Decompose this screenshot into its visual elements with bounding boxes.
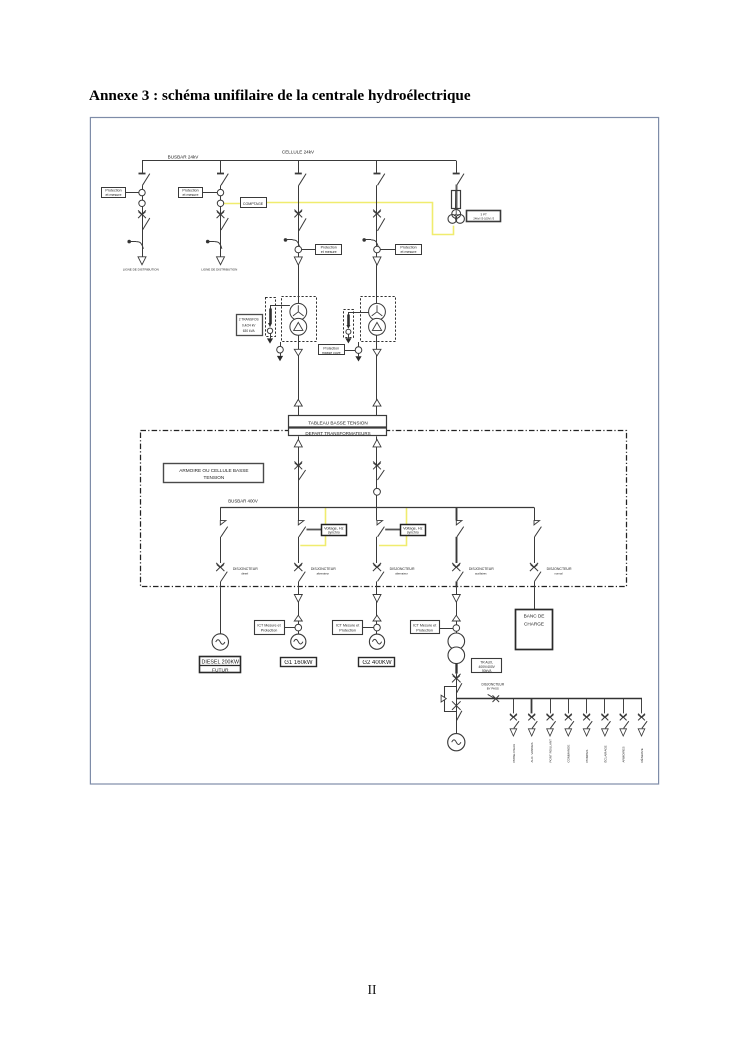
svg-text:alternateur: alternateur — [317, 571, 330, 575]
svg-text:masse cuve: masse cuve — [322, 351, 341, 355]
svg-text:G2 400KW: G2 400KW — [362, 660, 392, 666]
svg-text:PONT ROULANT: PONT ROULANT — [548, 739, 552, 763]
svg-text:DEPART TRANSFORMATEURS: DEPART TRANSFORMATEURS — [305, 431, 370, 436]
svg-text:Protection: Protection — [339, 629, 356, 633]
svg-text:DISJONCTEUR: DISJONCTEUR — [311, 567, 336, 571]
svg-text:ICT Mesure et: ICT Mesure et — [257, 624, 280, 628]
svg-text:BUSBAR 24kV: BUSBAR 24kV — [168, 155, 200, 160]
svg-text:ÉCLAIRAGE: ÉCLAIRAGE — [602, 745, 607, 762]
svg-text:Protection: Protection — [416, 629, 433, 633]
svg-text:0,4/24 kV: 0,4/24 kV — [242, 323, 256, 327]
svg-text:et mesure: et mesure — [401, 250, 417, 254]
svg-text:ARMOIRE OU CELLULE BASSE: ARMOIRE OU CELLULE BASSE — [179, 468, 248, 473]
svg-text:ARMOIRES: ARMOIRES — [622, 746, 626, 762]
svg-text:PRISE D'EAU: PRISE D'EAU — [512, 744, 516, 763]
svg-text:Protection: Protection — [261, 629, 278, 633]
svg-text:BUSBAR 400V: BUSBAR 400V — [228, 499, 258, 504]
svg-text:LIGNE DE DISTRIBUTION: LIGNE DE DISTRIBUTION — [123, 268, 159, 272]
svg-text:3 PT: 3 PT — [481, 212, 488, 216]
svg-text:auxiliaires: auxiliaires — [475, 571, 487, 575]
svg-text:DIESEL 200KW: DIESEL 200KW — [202, 660, 240, 666]
svg-text:et mesure: et mesure — [321, 250, 337, 254]
svg-text:DISJONCTEUR: DISJONCTEUR — [390, 567, 415, 571]
svg-text:Voltage, Hz: Voltage, Hz — [324, 526, 344, 530]
svg-text:CELLULE 24kV: CELLULE 24kV — [282, 150, 315, 155]
svg-text:et mesure: et mesure — [106, 193, 122, 197]
svg-text:synchro: synchro — [328, 531, 340, 535]
svg-text:24kV/√3-100V/√3: 24kV/√3-100V/√3 — [473, 217, 494, 221]
svg-text:Voltage, Hz: Voltage, Hz — [403, 526, 423, 530]
svg-text:DISJONCTEUR: DISJONCTEUR — [547, 567, 572, 571]
svg-text:ICT Mesure et: ICT Mesure et — [413, 624, 436, 628]
svg-text:et mesure: et mesure — [183, 193, 199, 197]
svg-text:G1 160kW: G1 160kW — [284, 660, 313, 666]
svg-text:TABLEAU BASSE TENSION: TABLEAU BASSE TENSION — [308, 420, 367, 425]
svg-text:DISJONCTEUR: DISJONCTEUR — [469, 567, 494, 571]
svg-text:TENSION: TENSION — [203, 475, 224, 480]
svg-text:synchro: synchro — [407, 531, 419, 535]
svg-text:Protection: Protection — [323, 347, 339, 351]
svg-text:AUX. VANNES: AUX. VANNES — [530, 743, 534, 763]
svg-text:COMPTAGE: COMPTAGE — [243, 202, 264, 206]
svg-text:BY PASS: BY PASS — [487, 687, 499, 691]
svg-text:COMMANDE: COMMANDE — [567, 745, 571, 763]
svg-text:630 kVA: 630 kVA — [243, 329, 256, 333]
svg-text:ICT Mesure et: ICT Mesure et — [336, 624, 359, 628]
svg-text:POMPES: POMPES — [585, 750, 589, 763]
svg-text:BANC DE: BANC DE — [524, 613, 545, 618]
svg-text:CHARGE: CHARGE — [524, 622, 544, 627]
svg-text:2 TRANSFOS: 2 TRANSFOS — [239, 318, 259, 322]
svg-text:FUTUR: FUTUR — [212, 668, 229, 674]
svg-text:DISJONCTEUR: DISJONCTEUR — [233, 567, 258, 571]
svg-text:50kVA: 50kVA — [482, 669, 492, 673]
svg-text:alternateur: alternateur — [395, 571, 408, 575]
svg-text:RÉSERVE: RÉSERVE — [639, 748, 644, 762]
svg-text:diesel: diesel — [241, 571, 248, 575]
svg-text:normal: normal — [555, 571, 563, 575]
svg-text:LIGNE DE DISTRIBUTION: LIGNE DE DISTRIBUTION — [201, 268, 237, 272]
